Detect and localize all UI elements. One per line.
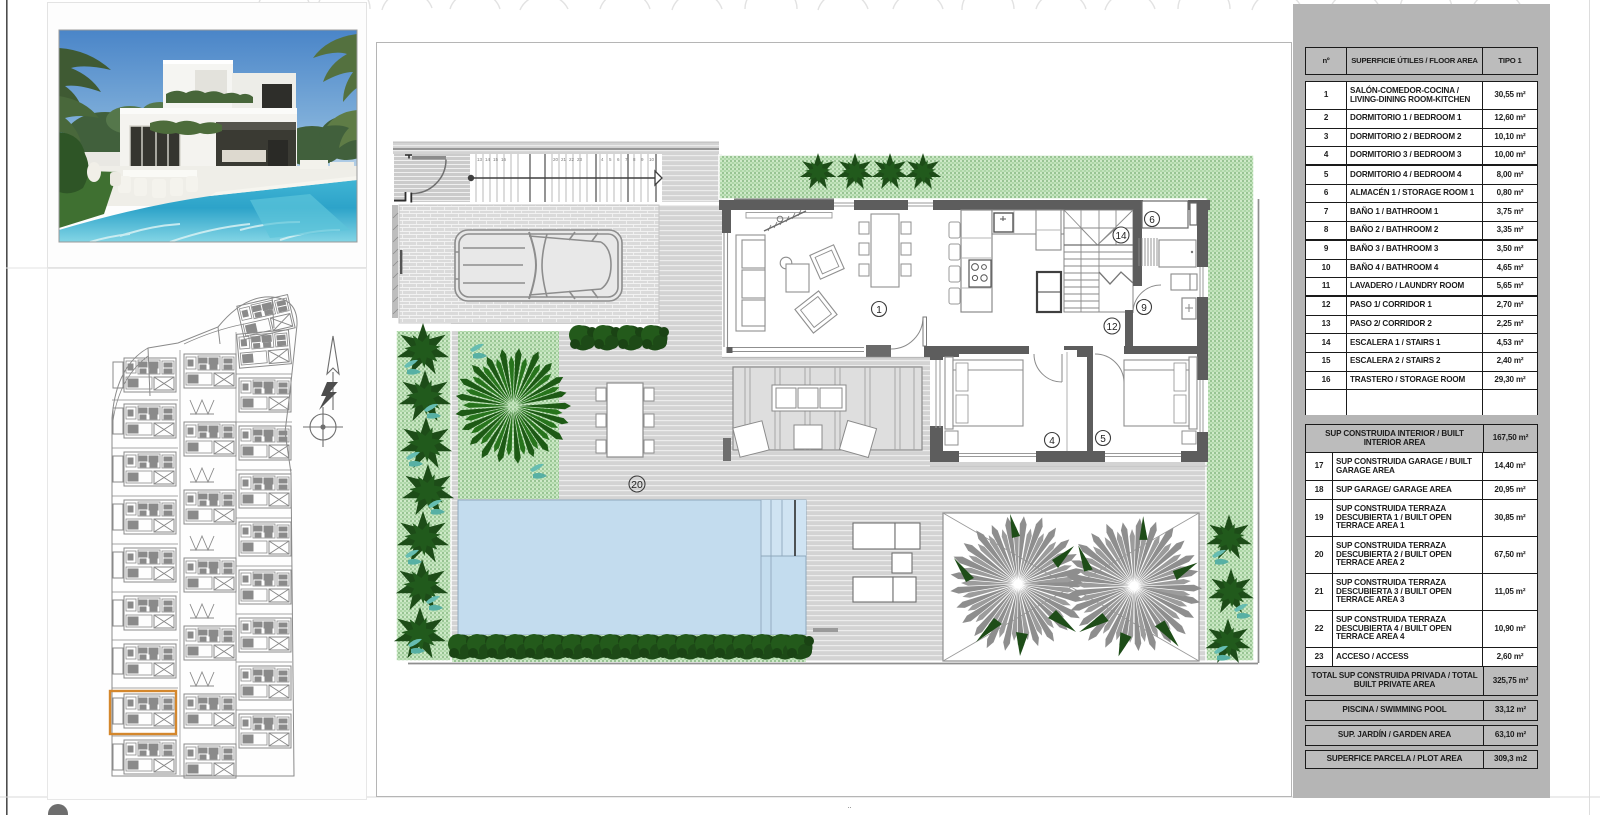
svg-text:14: 14: [485, 157, 491, 162]
svg-text:16: 16: [501, 157, 507, 162]
svg-text:10: 10: [649, 157, 655, 162]
svg-text:20: 20: [553, 157, 559, 162]
svg-text:14: 14: [1115, 231, 1127, 242]
svg-text:13: 13: [477, 157, 483, 162]
svg-text:1: 1: [876, 305, 882, 316]
svg-text:4: 4: [1049, 436, 1055, 447]
svg-text:21: 21: [561, 157, 567, 162]
svg-text:15: 15: [493, 157, 499, 162]
svg-text:20: 20: [631, 479, 643, 491]
svg-text:23: 23: [577, 157, 583, 162]
svg-text:6: 6: [1149, 215, 1155, 226]
svg-text:12: 12: [1106, 322, 1118, 333]
svg-text:5: 5: [1100, 434, 1106, 445]
svg-text:22: 22: [569, 157, 575, 162]
svg-text:¨: ¨: [848, 806, 851, 815]
svg-text:9: 9: [1141, 303, 1147, 314]
